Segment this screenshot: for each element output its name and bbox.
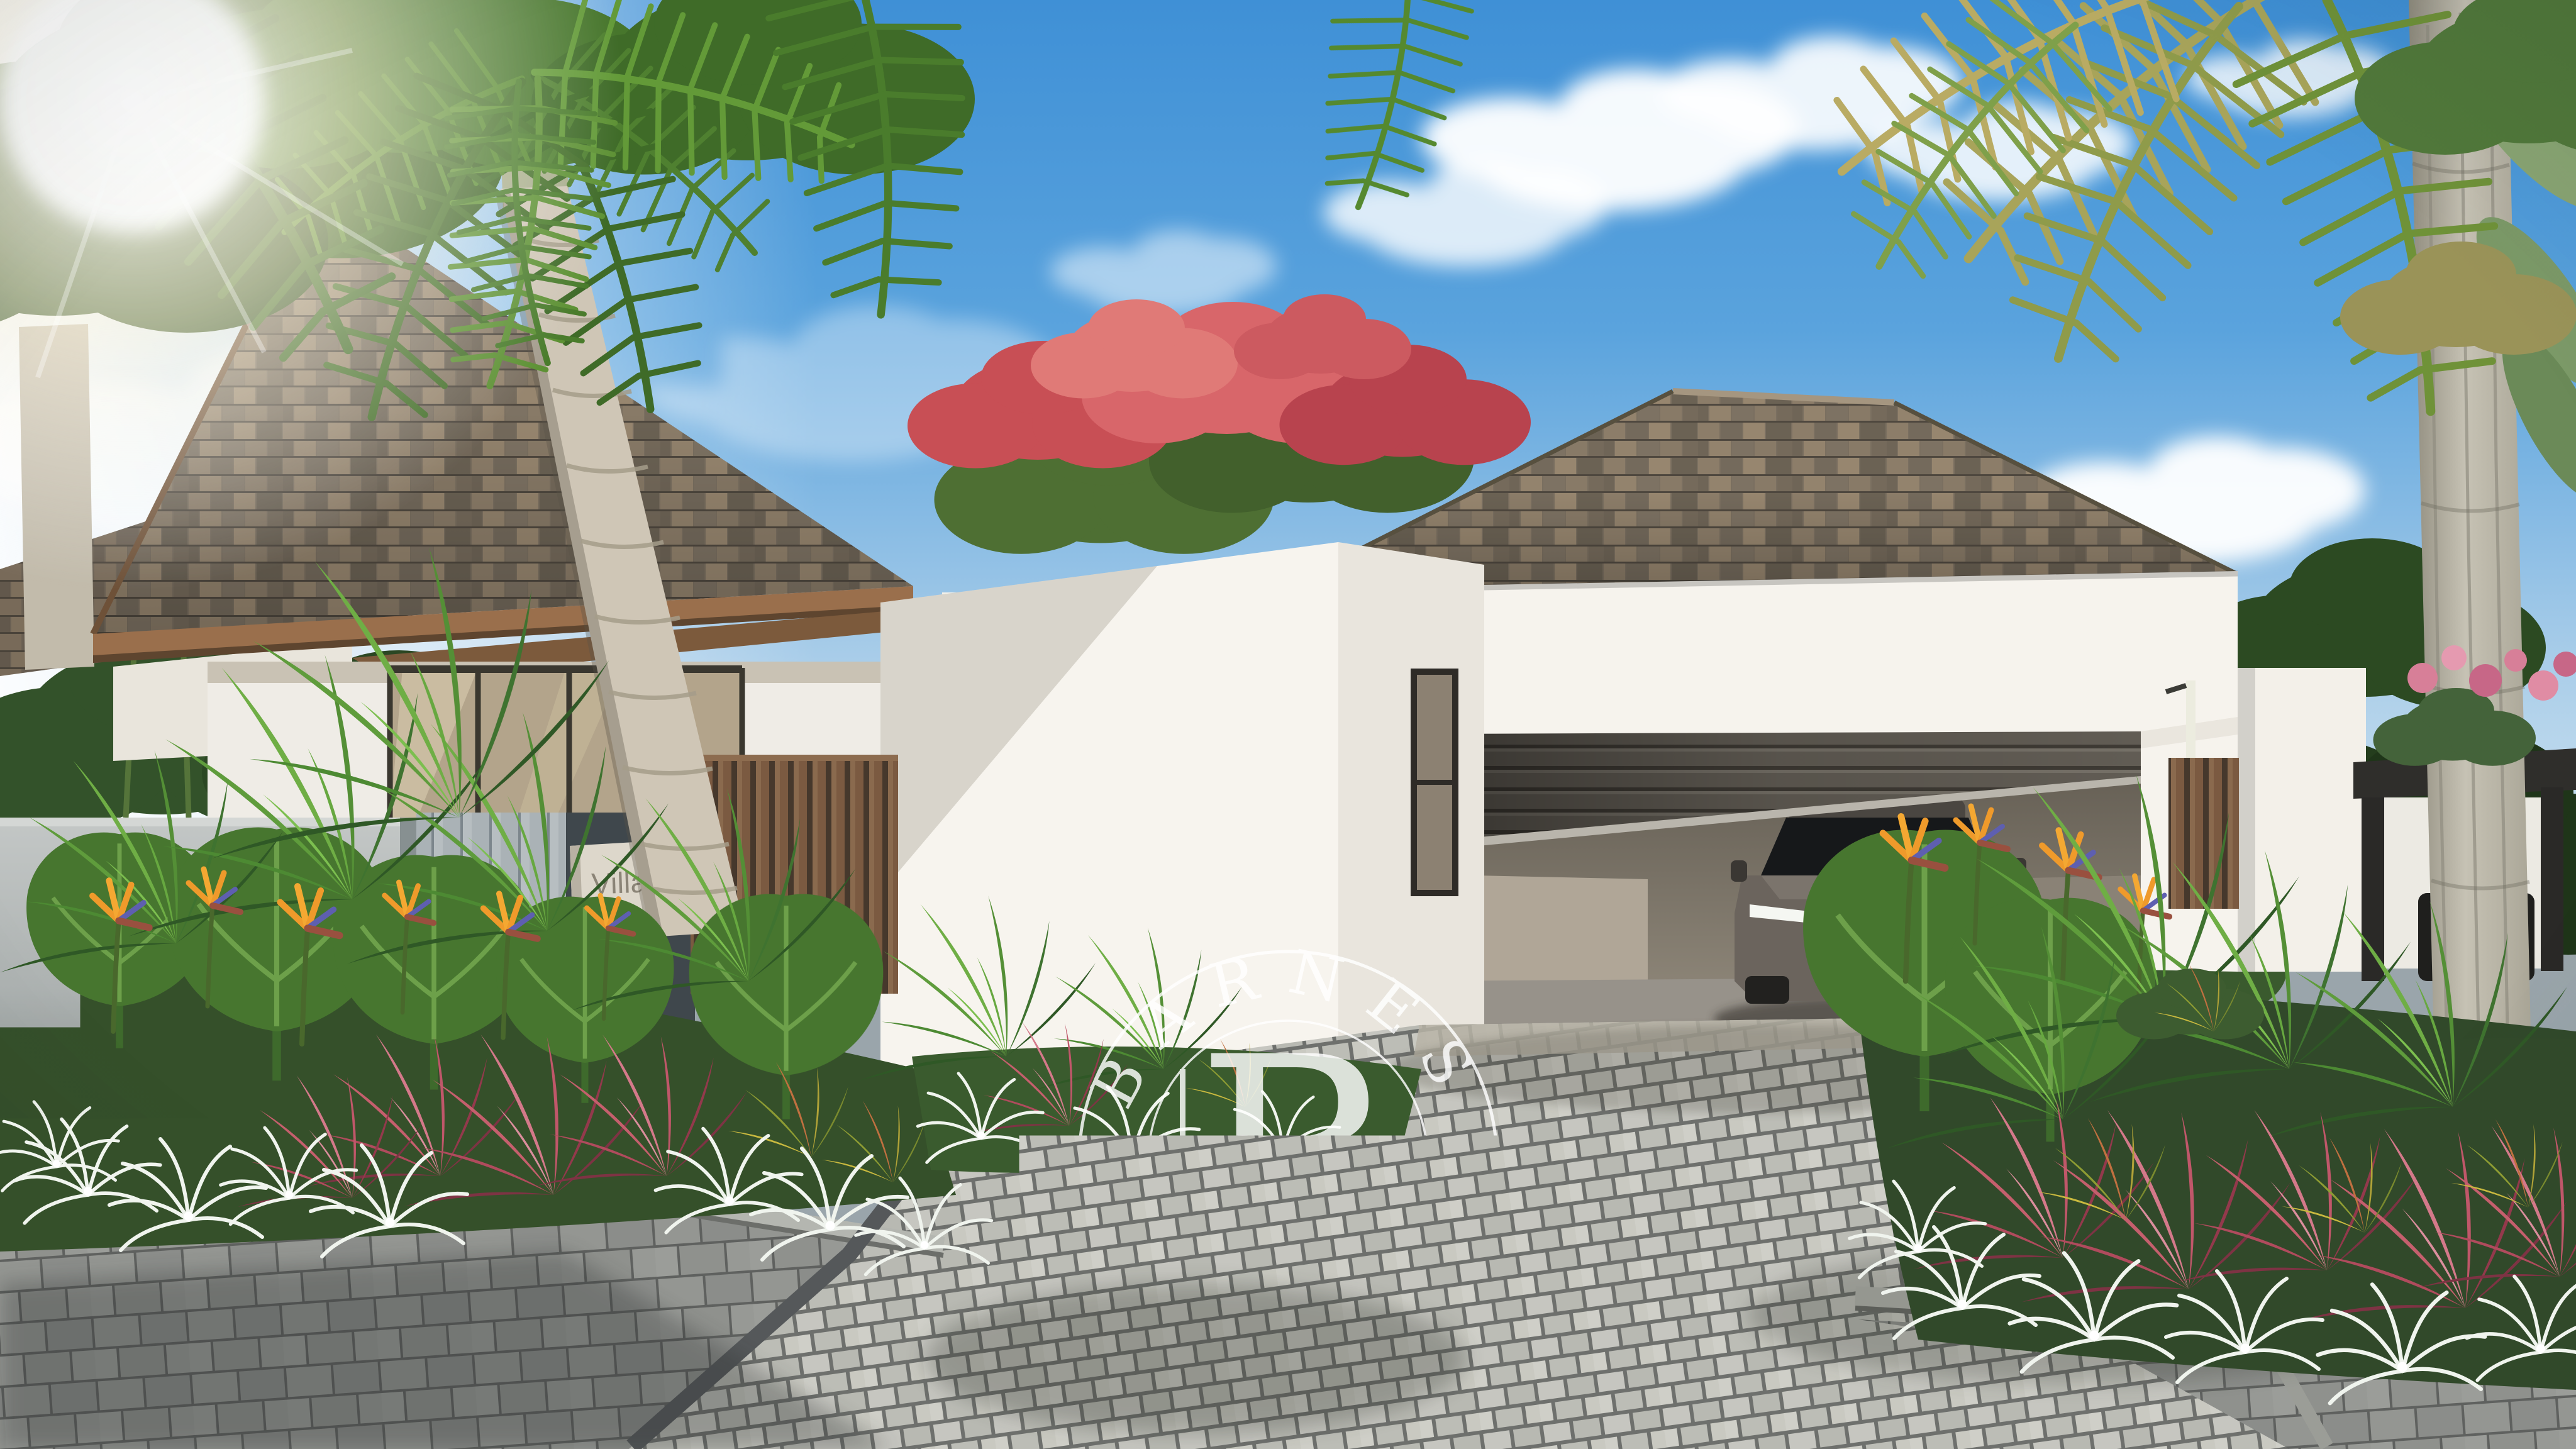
- vignette-overlay: [0, 0, 2576, 1449]
- villa-exterior-render: Villa 01: [0, 0, 2576, 1449]
